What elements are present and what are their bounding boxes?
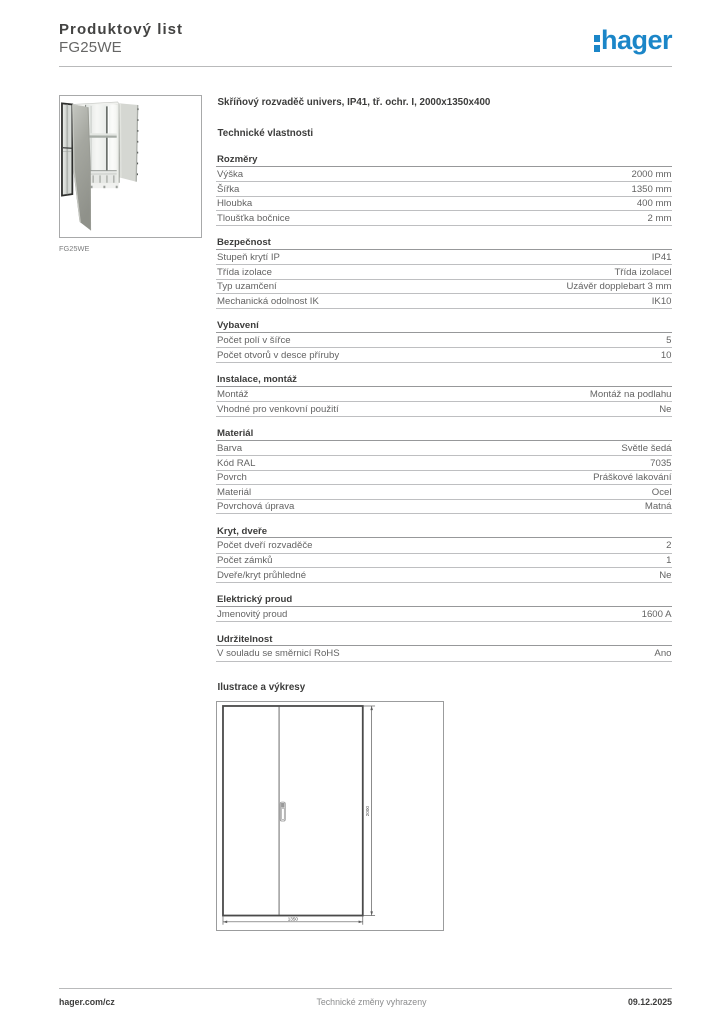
svg-text:2000: 2000: [364, 805, 369, 816]
svg-text:1350: 1350: [287, 916, 298, 921]
